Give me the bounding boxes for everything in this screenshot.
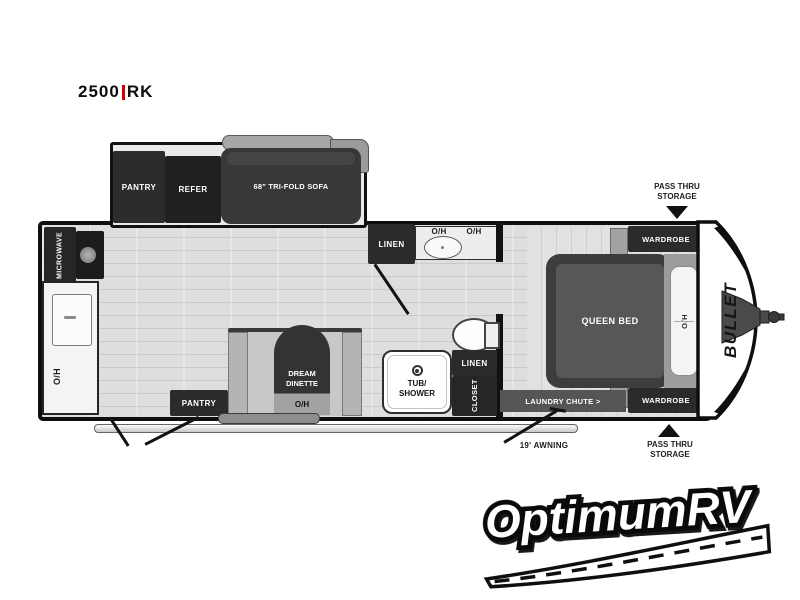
lower-pantry-label: PANTRY [182, 399, 216, 408]
closet-label: CLOSET [470, 380, 479, 413]
pass-thru-top-label: PASS THRU STORAGE [637, 182, 717, 202]
shower-head-icon [412, 365, 423, 376]
dinette-label-line2: DINETTE [286, 379, 318, 388]
dinette-table: DREAM DINETTE [274, 325, 330, 394]
bath-linen-label: LINEN [462, 359, 488, 368]
queen-bed-label: QUEEN BED [581, 316, 638, 326]
floorplan-page: 2500 RK PANTRY REFER 68" TRI-FOLD SOFA M… [0, 0, 800, 600]
pass-thru-arrow-down-icon [666, 206, 688, 219]
slide-pantry: PANTRY [113, 151, 165, 223]
pass-thru-bottom-line2: STORAGE [650, 450, 689, 459]
kitchen-faucet [64, 316, 76, 319]
pass-thru-bottom-label: PASS THRU STORAGE [630, 440, 710, 460]
entry-step [218, 413, 320, 424]
vanity-oh-left: O/H [425, 227, 453, 236]
wall-bath-top [496, 222, 503, 262]
bath-linen: LINEN [452, 350, 497, 376]
optimumrv-logo: OptimumRV OptimumRV [475, 475, 791, 594]
bed-overhead-label: O/H [680, 314, 689, 329]
laundry-chute-label: LAUNDRY CHUTE > [525, 397, 600, 406]
closet: CLOSET [452, 376, 497, 416]
lower-pantry: PANTRY [170, 390, 228, 416]
hitch-coupler [769, 312, 780, 323]
vanity-oh-right-text: O/H [466, 227, 481, 236]
pass-thru-top-line2: STORAGE [657, 192, 696, 201]
vanity-oh-left-text: O/H [431, 227, 446, 236]
vanity-oh-right: O/H [460, 227, 488, 236]
slide-pantry-label: PANTRY [122, 183, 156, 192]
microwave: MICROWAVE [44, 227, 76, 283]
pass-thru-bottom-line1: PASS THRU [647, 440, 693, 449]
front-cap: BULLET [690, 215, 800, 430]
dinette-bench-left [228, 332, 248, 416]
dinette-overhead-text: O/H [295, 400, 309, 409]
model-series: 2500 [78, 82, 120, 102]
hall-linen-label: LINEN [379, 240, 405, 249]
tri-fold-sofa: 68" TRI-FOLD SOFA [221, 148, 361, 224]
microwave-label: MICROWAVE [57, 231, 64, 278]
toilet-tank [484, 322, 500, 349]
tub-inner-rim [387, 355, 447, 409]
dinette-bench-right [342, 332, 362, 416]
kitchen-overhead-text: O/H [52, 369, 62, 386]
bath-sink [424, 236, 462, 259]
bullet-brand-text: BULLET [721, 282, 740, 358]
model-number: 2500 RK [78, 82, 153, 102]
range-burner [80, 247, 96, 263]
hall-linen: LINEN [368, 224, 415, 264]
refrigerator-label: REFER [178, 185, 207, 194]
nightstand-top [610, 228, 628, 256]
model-red-divider [122, 85, 125, 100]
kitchen-overhead-label: O/H [52, 360, 72, 394]
dinette-label-line1: DREAM [288, 369, 316, 378]
kitchen-sink [52, 294, 92, 346]
queen-bed: QUEEN BED [556, 264, 664, 378]
wardrobe-bottom-label: WARDROBE [642, 396, 690, 405]
model-trim: RK [127, 82, 154, 102]
sofa-label: 68" TRI-FOLD SOFA [254, 182, 329, 191]
dinette-label: DREAM DINETTE [286, 369, 318, 388]
pass-thru-top-line1: PASS THRU [654, 182, 700, 191]
hitch-tube [760, 311, 769, 323]
pass-thru-arrow-up-icon [658, 424, 680, 437]
tub-shower: TUB/ SHOWER [382, 350, 452, 414]
refrigerator: REFER [165, 156, 221, 223]
dinette-overhead: O/H [274, 393, 330, 415]
awning-label-text: 19' AWNING [520, 441, 569, 450]
hitch-tip [779, 314, 784, 320]
awning-label: 19' AWNING [506, 441, 582, 450]
wardrobe-top-label: WARDROBE [642, 235, 690, 244]
